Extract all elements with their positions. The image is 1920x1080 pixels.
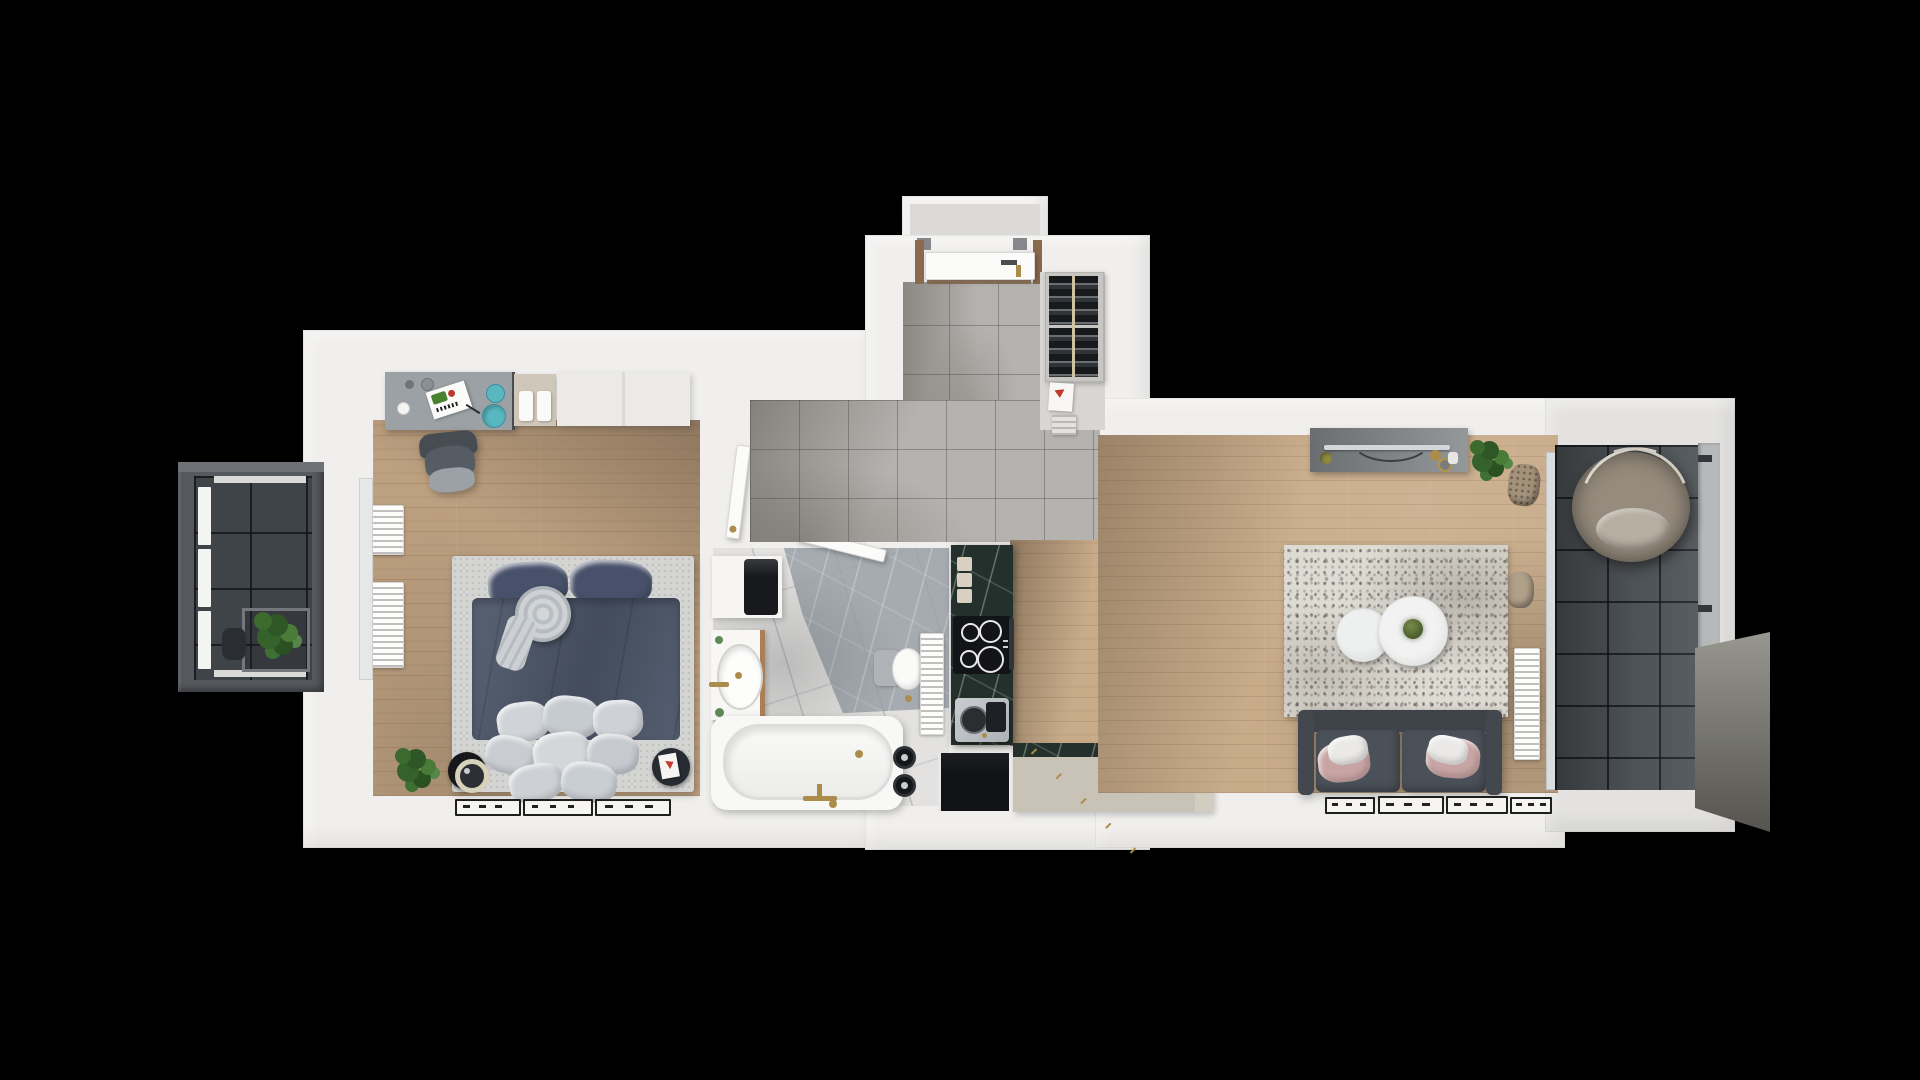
picture-frame bbox=[523, 799, 593, 816]
entrance-hall bbox=[750, 196, 1150, 546]
bath-stool-top bbox=[901, 782, 908, 789]
bath-stool bbox=[893, 774, 916, 797]
bathtub-basin bbox=[723, 724, 893, 800]
step-stool bbox=[1052, 415, 1076, 435]
outer-wall-wedge bbox=[1695, 632, 1770, 832]
balcony-window bbox=[359, 478, 373, 680]
planter-plant bbox=[254, 612, 272, 630]
coffee-machine bbox=[955, 698, 1009, 742]
cutting-board bbox=[957, 573, 972, 587]
toilet-flush-button bbox=[905, 695, 912, 702]
entrance-door bbox=[925, 252, 1035, 280]
cooktop-controls bbox=[1003, 640, 1008, 642]
frame-print bbox=[463, 805, 511, 808]
living-wall-radiator bbox=[1514, 648, 1540, 760]
desk-cup bbox=[397, 402, 410, 415]
floor-plan-canvas bbox=[0, 0, 1920, 1080]
tv-sideboard bbox=[1310, 428, 1468, 472]
picture-frame bbox=[1325, 797, 1375, 814]
desk-plate-small bbox=[486, 384, 505, 403]
sofa-armrest bbox=[1486, 710, 1502, 795]
bathtub-faucet-stem bbox=[817, 784, 822, 798]
bedroom bbox=[373, 420, 703, 800]
dark-base-cabinet bbox=[938, 753, 1009, 811]
living-plant bbox=[1470, 440, 1485, 455]
coffee-table-large bbox=[1378, 596, 1448, 666]
tv-cable bbox=[1350, 416, 1432, 462]
living-room bbox=[1098, 400, 1560, 815]
washer-cabinet bbox=[712, 556, 782, 618]
desk bbox=[385, 372, 515, 430]
cooktop-burner bbox=[979, 620, 1002, 643]
wardrobe bbox=[557, 372, 690, 426]
c ooktop-burner bbox=[977, 646, 1004, 673]
sofa-armrest bbox=[1298, 710, 1314, 795]
cooktop-burner bbox=[960, 650, 978, 668]
soap-dish bbox=[715, 636, 723, 644]
magazine-art-red bbox=[447, 389, 456, 398]
glass-railing-panel bbox=[198, 611, 211, 669]
tv-panel bbox=[1324, 445, 1450, 450]
floor-speaker-knob bbox=[464, 768, 470, 774]
drawer bbox=[537, 391, 551, 421]
balcony-left-drain-top bbox=[214, 476, 306, 483]
coffee-machine-head bbox=[986, 702, 1006, 732]
papers-red-print bbox=[1054, 389, 1065, 399]
wicker-basket-small bbox=[1506, 572, 1534, 608]
balcony-left bbox=[178, 462, 324, 692]
door-frame bbox=[915, 240, 924, 284]
coffee-table-moss-bowl bbox=[1403, 619, 1423, 639]
balcony-right bbox=[1545, 398, 1770, 833]
picture-frame bbox=[1446, 796, 1508, 814]
glass-railing-panel bbox=[198, 549, 211, 607]
induction-cooktop bbox=[953, 616, 1011, 674]
frame-print bbox=[1332, 803, 1368, 806]
picture-frame bbox=[1378, 796, 1444, 814]
planter-box bbox=[242, 608, 310, 672]
frame-print bbox=[1454, 803, 1500, 806]
floor-speaker bbox=[448, 752, 486, 790]
bathtub-faucet-knob bbox=[829, 800, 837, 808]
bath-stool-top bbox=[901, 754, 908, 761]
cooktop-burner bbox=[961, 623, 980, 642]
washbasin-counter bbox=[711, 630, 765, 720]
vestibule-floor bbox=[903, 282, 1040, 400]
entrance-door-handle-gold bbox=[1016, 265, 1021, 277]
desk-pen bbox=[466, 404, 481, 414]
dropped-papers bbox=[1048, 382, 1074, 412]
counter-handle-bar bbox=[1009, 618, 1014, 670]
picture-frame bbox=[455, 799, 521, 816]
washbasin-faucet bbox=[709, 682, 729, 687]
glass-railing-panel bbox=[198, 487, 211, 545]
side-table bbox=[652, 748, 690, 786]
cutting-board bbox=[957, 557, 972, 571]
desk-plate-large bbox=[482, 404, 506, 428]
bath-stool bbox=[893, 746, 916, 769]
drawer bbox=[519, 391, 533, 421]
desk-knob bbox=[421, 378, 434, 391]
washer-front bbox=[744, 559, 778, 615]
bathtub bbox=[711, 716, 903, 810]
picture-frame bbox=[595, 799, 671, 816]
desk-chair bbox=[414, 429, 486, 498]
hanging-egg-chair bbox=[1572, 452, 1692, 564]
sideboard-decor-plant bbox=[1320, 452, 1332, 464]
kitchen-floor bbox=[1010, 540, 1102, 746]
shoe-cabinet bbox=[1045, 272, 1104, 382]
desk-knob bbox=[405, 380, 414, 389]
sofa bbox=[1298, 710, 1502, 795]
door-hinge-block bbox=[1013, 238, 1027, 250]
bathtub-drain bbox=[855, 750, 863, 758]
balcony-left-top-edge bbox=[178, 462, 324, 472]
sofa-backrest bbox=[1298, 710, 1502, 732]
frame-print bbox=[605, 805, 660, 808]
coffee-machine-dot bbox=[982, 733, 987, 738]
entrance-door-handle bbox=[1001, 260, 1017, 265]
cutting-board bbox=[957, 589, 972, 603]
frame-print bbox=[1386, 803, 1435, 806]
sideboard-decor-white bbox=[1448, 452, 1458, 464]
shoe-cabinet-rail bbox=[1072, 276, 1075, 377]
drawer-unit bbox=[514, 374, 556, 426]
floor-speaker-ring bbox=[455, 759, 489, 793]
bathroom bbox=[694, 520, 956, 810]
wall-radiator bbox=[368, 582, 404, 668]
frame-print bbox=[532, 805, 582, 808]
toilet bbox=[874, 648, 922, 688]
magazine-art-green bbox=[431, 391, 448, 405]
wall-radiator bbox=[368, 505, 404, 555]
coffee-machine-grinder bbox=[960, 706, 988, 734]
watering-can bbox=[222, 628, 246, 660]
frame-print bbox=[1516, 803, 1546, 806]
washbasin-drain bbox=[735, 672, 742, 679]
bedroom-plant bbox=[395, 748, 411, 764]
